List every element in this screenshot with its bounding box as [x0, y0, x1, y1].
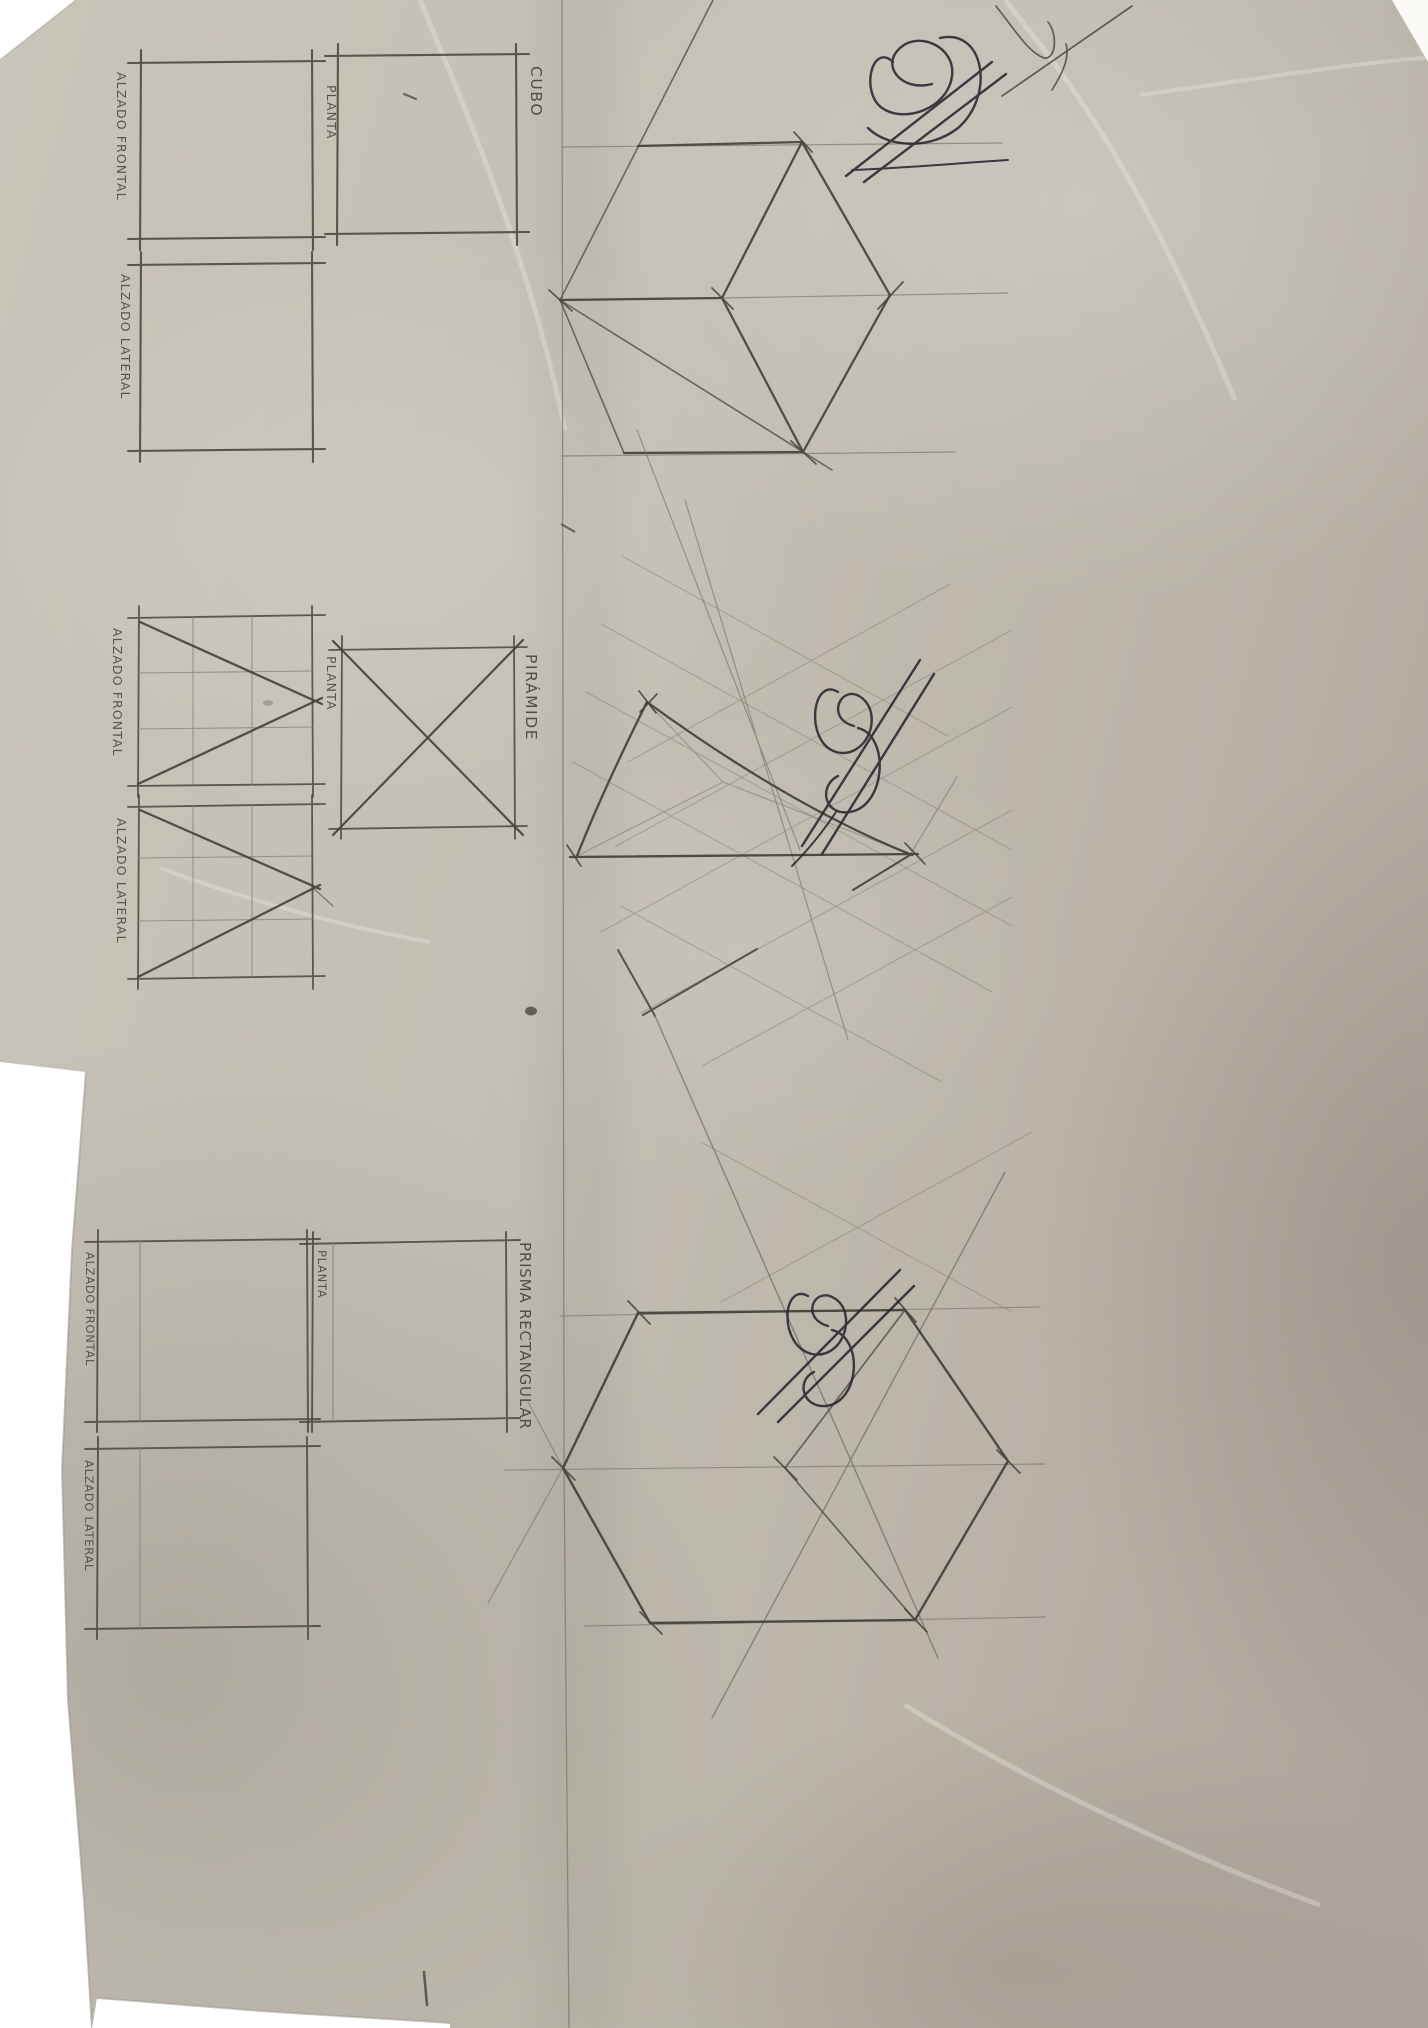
label-prisma-alzado-frontal: ALZADO FRONTAL — [83, 1252, 97, 1366]
paper-creases — [160, 0, 1425, 1905]
pencil-drawing-layer — [0, 0, 1428, 2028]
cube-axonometric — [549, 0, 1008, 470]
label-piramide-planta: PLANTA — [324, 656, 339, 711]
label-prisma-alzado-lateral: ALZADO LATERAL — [82, 1460, 96, 1571]
title-prisma-rectangular: PRISMA RECTANGULAR — [516, 1242, 534, 1430]
pen-scribble-top-corner — [996, 6, 1132, 96]
title-cubo: CUBO — [527, 66, 545, 117]
signature-bottom — [758, 1270, 914, 1422]
title-piramide: PIRÁMIDE — [522, 654, 540, 741]
long-construction-lines — [618, 949, 1005, 1718]
photographed-drawing-sheet: ALZADO FRONTAL PLANTA ALZADO LATERAL CUB… — [0, 0, 1428, 2028]
photo-margins — [0, 0, 1428, 2028]
prism-orthographic-views — [85, 1230, 520, 1639]
signature-middle-right — [792, 660, 934, 866]
pyramid-axonometric — [525, 430, 1032, 1312]
signature-top-right — [846, 37, 1008, 182]
label-cubo-planta: PLANTA — [324, 85, 339, 140]
stray-pencil-marks — [263, 94, 427, 2005]
label-piramide-alzado-frontal: ALZADO FRONTAL — [110, 628, 125, 757]
label-piramide-alzado-lateral: ALZADO LATERAL — [114, 818, 129, 944]
label-cubo-alzado-frontal: ALZADO FRONTAL — [114, 72, 129, 201]
prism-axonometric — [488, 1298, 1045, 1634]
label-prisma-planta: PLANTA — [315, 1250, 329, 1298]
label-cubo-alzado-lateral: ALZADO LATERAL — [118, 274, 133, 400]
